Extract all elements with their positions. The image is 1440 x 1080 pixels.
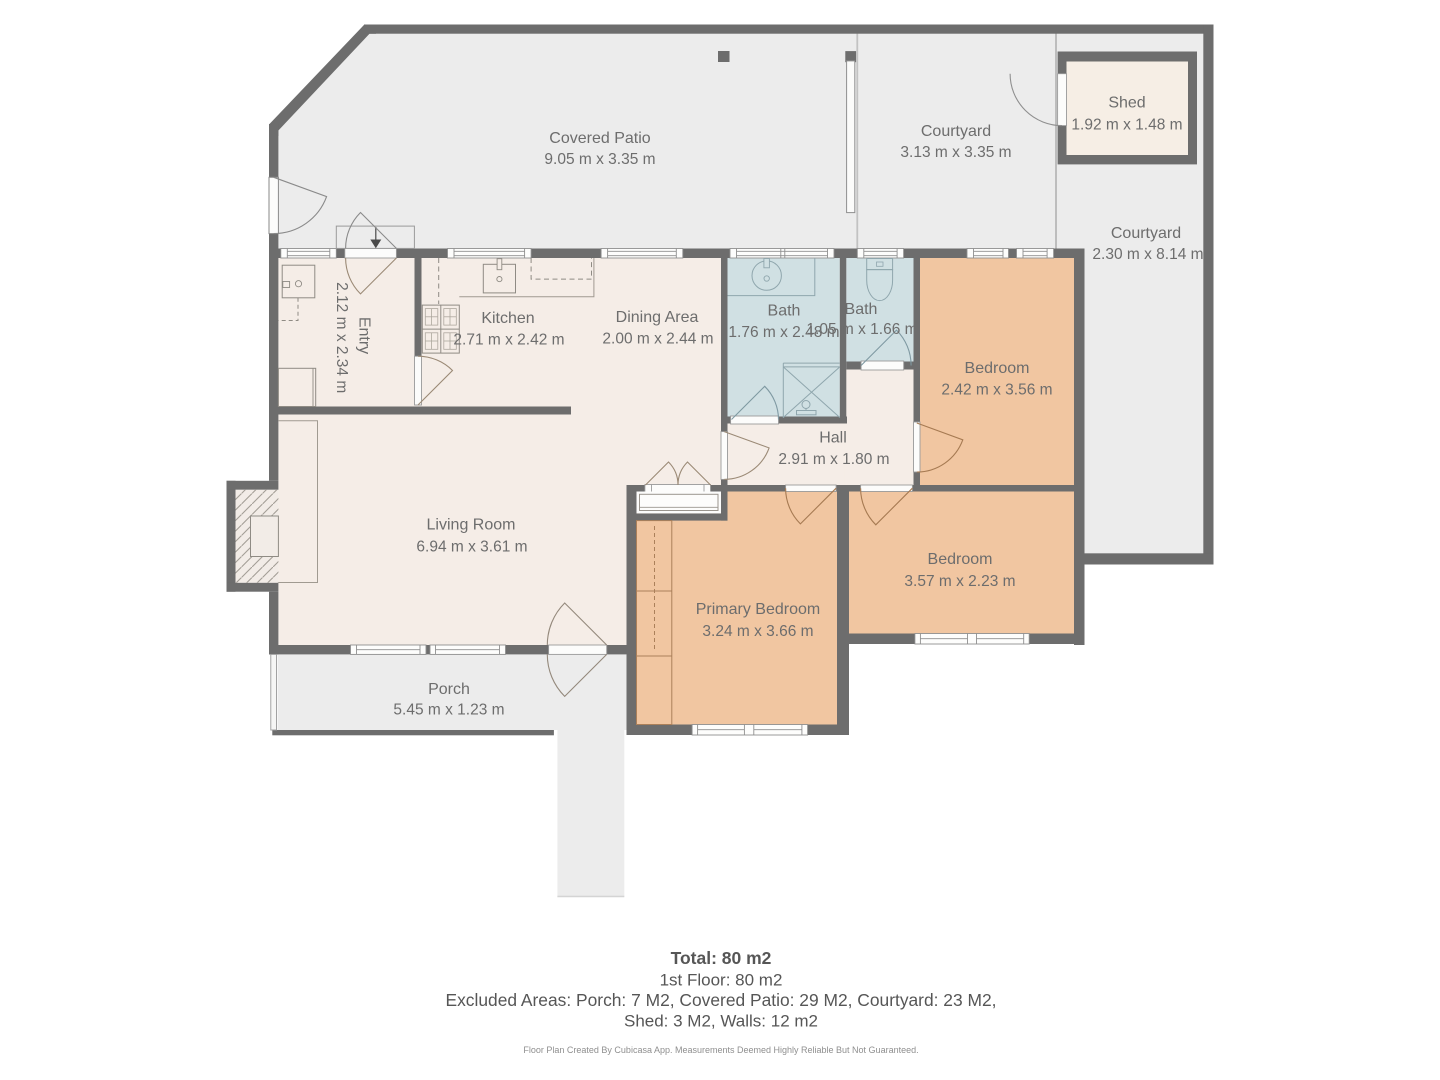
svg-text:Bedroom: Bedroom	[928, 551, 993, 568]
svg-text:Dining Area: Dining Area	[616, 309, 699, 326]
svg-text:Bath: Bath	[845, 301, 878, 318]
svg-text:3.13 m x 3.35 m: 3.13 m x 3.35 m	[900, 144, 1011, 161]
svg-text:Floor Plan Created By Cubicasa: Floor Plan Created By Cubicasa App. Meas…	[523, 1045, 918, 1055]
svg-text:Shed: 3 M2, Walls: 12 m2: Shed: 3 M2, Walls: 12 m2	[624, 1012, 818, 1031]
svg-text:Excluded Areas: Porch: 7 M2, C: Excluded Areas: Porch: 7 M2, Covered Pat…	[446, 990, 997, 1010]
svg-text:1.05 m x 1.66 m: 1.05 m x 1.66 m	[806, 321, 917, 338]
svg-text:Bath: Bath	[768, 303, 801, 320]
svg-text:Courtyard: Courtyard	[1111, 225, 1181, 242]
svg-text:Bedroom: Bedroom	[965, 360, 1030, 377]
svg-text:Kitchen: Kitchen	[481, 310, 534, 327]
svg-text:Living Room: Living Room	[427, 517, 516, 534]
svg-text:Hall: Hall	[819, 430, 847, 447]
svg-text:2.30 m x 8.14 m: 2.30 m x 8.14 m	[1092, 246, 1203, 263]
svg-text:Covered Patio: Covered Patio	[549, 130, 650, 147]
svg-text:Entry: Entry	[356, 317, 373, 354]
svg-text:2.91 m x 1.80 m: 2.91 m x 1.80 m	[778, 451, 889, 468]
svg-text:Shed: Shed	[1108, 95, 1145, 112]
svg-text:Porch: Porch	[428, 681, 470, 698]
svg-text:1.92 m x 1.48 m: 1.92 m x 1.48 m	[1071, 117, 1182, 134]
svg-text:9.05 m x 3.35 m: 9.05 m x 3.35 m	[544, 151, 655, 168]
svg-text:Total: 80 m2: Total: 80 m2	[671, 948, 772, 968]
svg-text:Courtyard: Courtyard	[921, 123, 991, 140]
svg-text:1st Floor: 80 m2: 1st Floor: 80 m2	[660, 971, 783, 990]
svg-text:6.94 m x 3.61 m: 6.94 m x 3.61 m	[416, 539, 527, 556]
svg-text:5.45 m x 1.23 m: 5.45 m x 1.23 m	[393, 702, 504, 719]
svg-text:3.57 m x 2.23 m: 3.57 m x 2.23 m	[904, 573, 1015, 590]
svg-text:3.24 m x 3.66 m: 3.24 m x 3.66 m	[702, 623, 813, 640]
svg-text:Primary Bedroom: Primary Bedroom	[696, 601, 820, 618]
svg-text:2.71 m x 2.42 m: 2.71 m x 2.42 m	[453, 332, 564, 349]
svg-text:2.00 m x 2.44 m: 2.00 m x 2.44 m	[602, 331, 713, 348]
svg-text:2.42 m x 3.56 m: 2.42 m x 3.56 m	[941, 382, 1052, 399]
svg-text:2.12 m x 2.34 m: 2.12 m x 2.34 m	[333, 282, 350, 393]
